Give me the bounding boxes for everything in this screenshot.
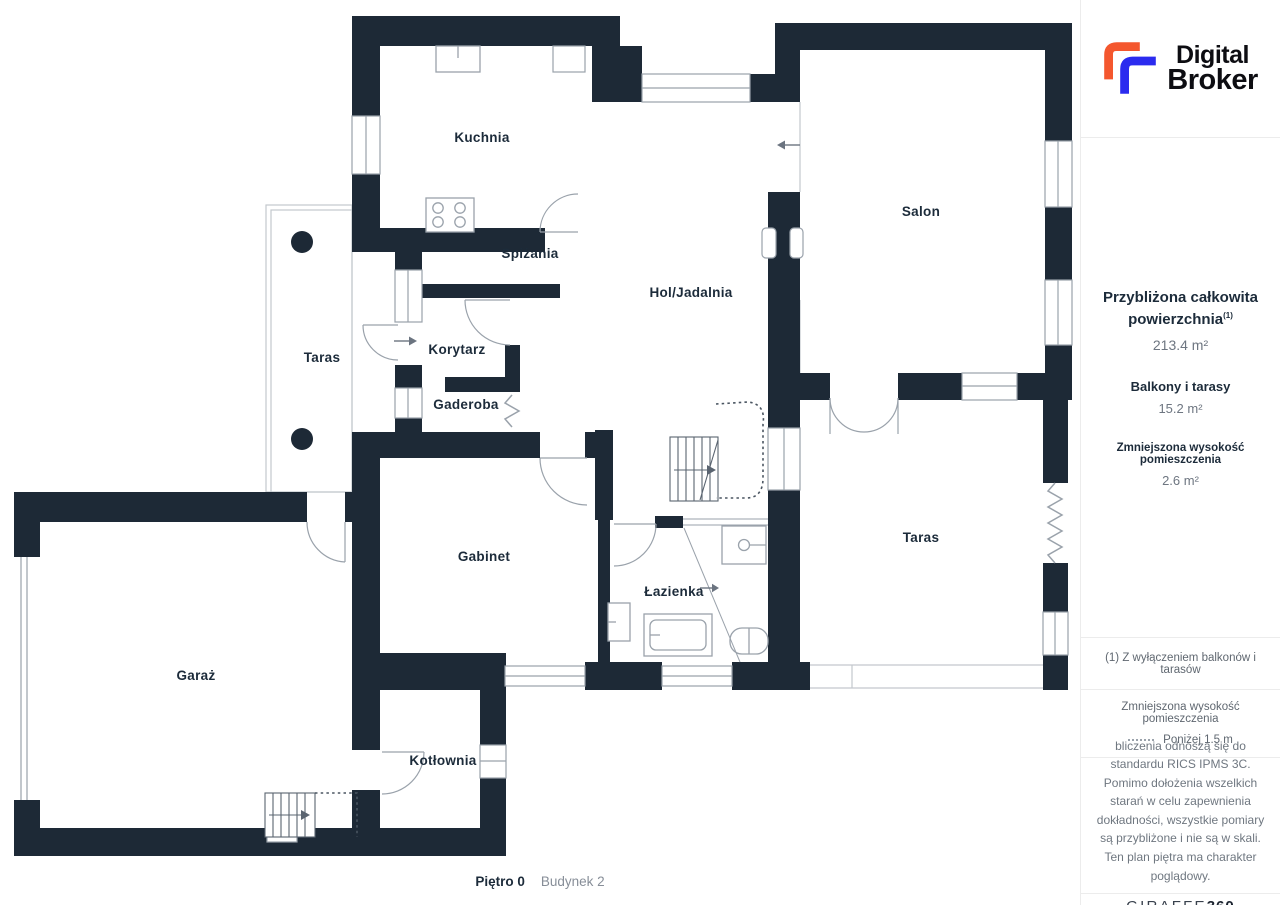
bathroom-door — [614, 524, 656, 566]
footnote-panel: (1) Z wyłączeniem balkonów i tarasów — [1081, 638, 1280, 690]
room-label-taras-left: Taras — [304, 350, 341, 365]
room-label-garaz: Garaż — [176, 668, 215, 683]
room-label-spizania: Spiżania — [501, 246, 558, 261]
bathroom-partition — [683, 519, 768, 525]
total-area-label-line1: Przybliżona całkowita — [1103, 289, 1258, 306]
room-label-hol-jadalnia: Hol/Jadalnia — [649, 285, 732, 300]
kitchen-door — [540, 194, 578, 232]
floorplan-drawing: Kuchnia Spiżania Hol/Jadalnia Salon Tara… — [0, 0, 1080, 905]
room-label-taras-right: Taras — [903, 530, 940, 545]
brand-logo: Digital Broker — [1081, 0, 1280, 138]
garage-door — [21, 557, 297, 842]
shower-fixture — [730, 628, 768, 654]
total-area-label: Przybliżona całkowita powierzchnia(1) — [1103, 287, 1258, 331]
area-stats-panel: Przybliżona całkowita powierzchnia(1) 21… — [1081, 138, 1280, 638]
total-area-footnote-ref: (1) — [1223, 311, 1233, 320]
footnote-text: (1) Z wyłączeniem balkonów i tarasów — [1087, 652, 1274, 676]
disclaimer-text: bliczenia odnoszą się do standardu RICS … — [1091, 737, 1270, 886]
room-label-gaderoba: Gaderoba — [433, 397, 499, 412]
toilet-fixture — [608, 603, 630, 641]
reduced-height-value: 2.6 m² — [1162, 473, 1199, 488]
building-label: Budynek 2 — [541, 874, 605, 889]
room-label-kuchnia: Kuchnia — [454, 130, 510, 145]
stove-fixture — [426, 198, 474, 232]
walls — [14, 16, 1072, 856]
garage-stairs — [265, 793, 315, 837]
digital-broker-logo-icon — [1103, 40, 1159, 98]
kitchen-sink-fixture — [436, 46, 480, 72]
korytarz-door — [465, 300, 510, 345]
bathtub-fixture — [644, 614, 712, 656]
bathroom-sink-fixture — [722, 526, 766, 564]
floor-label: Piętro 0 — [475, 874, 525, 889]
logo-line2: Broker — [1167, 67, 1258, 94]
room-label-lazienka: Łazienka — [644, 584, 704, 599]
garage-inner-door — [307, 522, 345, 562]
room-label-korytarz: Korytarz — [428, 342, 485, 357]
total-area-value: 213.4 m² — [1153, 337, 1208, 353]
main-stairs — [670, 437, 718, 501]
room-label-salon: Salon — [902, 204, 940, 219]
salon-terrace-double-door — [830, 398, 898, 434]
entrance-arrow-korytarz — [394, 337, 417, 346]
plan-caption: Piętro 0 Budynek 2 — [0, 874, 1080, 889]
terrace-columns — [291, 231, 313, 450]
giraffe360-suffix: 360 — [1207, 898, 1235, 905]
room-label-kotlownia: Kotłownia — [409, 753, 476, 768]
room-label-gabinet: Gabinet — [458, 549, 511, 564]
legend-title: Zmniejszona wysokość pomieszczenia — [1087, 701, 1274, 725]
disclaimer-panel: bliczenia odnoszą się do standardu RICS … — [1081, 758, 1280, 894]
digital-broker-logo-text: Digital Broker — [1167, 44, 1258, 94]
info-sidebar: Digital Broker Przybliżona całkowita pow… — [1080, 0, 1280, 905]
floorplan-screen: Kuchnia Spiżania Hol/Jadalnia Salon Tara… — [0, 0, 1280, 905]
balconies-value: 15.2 m² — [1158, 401, 1202, 416]
entrance-arrow-salon — [777, 141, 800, 150]
entrance-door — [363, 325, 398, 360]
giraffe360-name: GIRAFFE — [1126, 898, 1206, 905]
balconies-label: Balkony i tarasy — [1131, 379, 1231, 394]
gabinet-door — [540, 458, 587, 505]
giraffe360-logo: GIRAFFE360 — [1126, 895, 1234, 905]
reduced-height-label: Zmniejszona wysokość pomieszczenia — [1091, 442, 1270, 466]
total-area-label-line2: powierzchnia — [1128, 311, 1223, 328]
